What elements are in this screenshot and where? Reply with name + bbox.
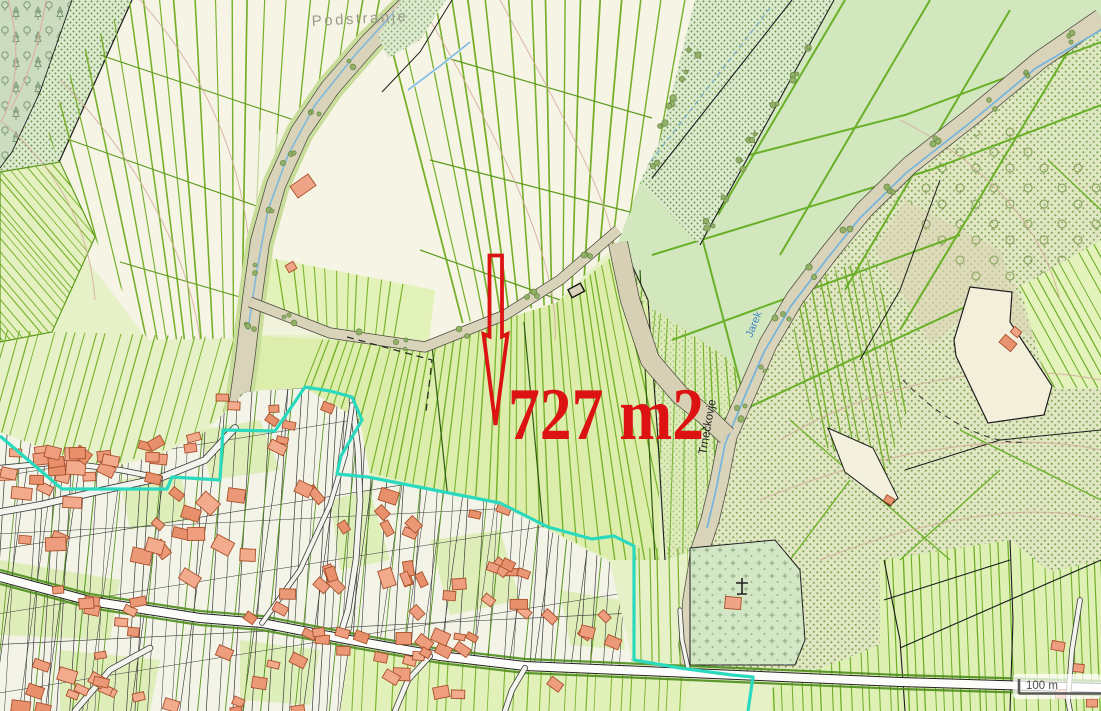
svg-text:100 m: 100 m — [1026, 680, 1058, 692]
svg-text:727 m2: 727 m2 — [508, 374, 704, 456]
